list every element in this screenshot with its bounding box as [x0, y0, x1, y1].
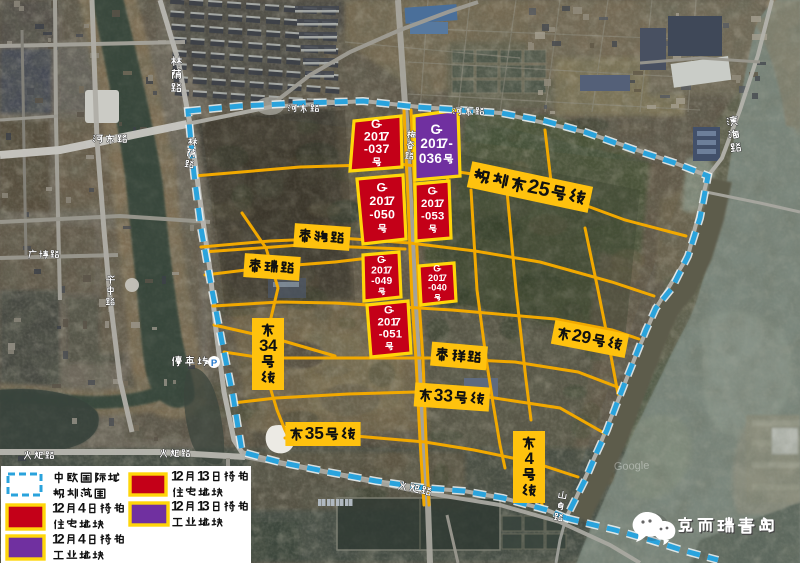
svg-text:3: 3: [375, 142, 382, 156]
svg-text:-: -: [391, 304, 395, 316]
svg-text:0: 0: [383, 328, 389, 340]
svg-text:7: 7: [388, 194, 395, 208]
svg-text:4: 4: [78, 530, 86, 546]
svg-text:2: 2: [369, 194, 376, 208]
svg-text:7: 7: [383, 142, 390, 156]
svg-text:4: 4: [78, 499, 86, 515]
svg-text:5: 5: [389, 328, 395, 340]
svg-text:5: 5: [432, 210, 438, 222]
svg-text:0: 0: [428, 136, 436, 151]
svg-text:0: 0: [377, 194, 384, 208]
svg-text:1: 1: [396, 328, 402, 340]
svg-text:3: 3: [202, 497, 210, 513]
svg-text:2: 2: [57, 499, 65, 515]
svg-text:2: 2: [57, 530, 65, 546]
svg-text:5: 5: [314, 423, 324, 443]
svg-text:0: 0: [419, 151, 427, 166]
svg-text:-: -: [384, 180, 388, 194]
svg-text:-: -: [439, 264, 442, 274]
svg-text:7: 7: [441, 136, 449, 151]
svg-text:Google: Google: [614, 460, 650, 473]
svg-text:-: -: [434, 185, 438, 197]
svg-text:0: 0: [368, 142, 375, 156]
svg-text:3: 3: [443, 385, 454, 406]
svg-text:2: 2: [420, 136, 428, 151]
svg-text:0: 0: [425, 210, 431, 222]
svg-text:-: -: [438, 122, 443, 137]
svg-text:-: -: [448, 136, 453, 151]
svg-text:0: 0: [428, 198, 434, 210]
svg-text:3: 3: [438, 210, 444, 222]
svg-text:7: 7: [438, 198, 444, 210]
svg-text:0: 0: [442, 283, 447, 293]
svg-text:2: 2: [378, 316, 384, 328]
svg-text:7: 7: [387, 265, 393, 276]
svg-text:0: 0: [384, 316, 390, 328]
svg-text:34: 34: [259, 336, 278, 355]
svg-text:0: 0: [374, 207, 381, 221]
svg-text:3: 3: [427, 151, 435, 166]
svg-text:2: 2: [421, 198, 427, 210]
svg-text:0: 0: [388, 207, 395, 221]
svg-text:7: 7: [442, 273, 447, 283]
svg-text:2: 2: [176, 467, 184, 483]
svg-text:-: -: [383, 255, 387, 266]
svg-text:5: 5: [381, 207, 388, 221]
svg-text:3: 3: [305, 423, 315, 443]
svg-text:4: 4: [525, 449, 535, 468]
svg-text:2: 2: [176, 497, 184, 513]
svg-text:6: 6: [434, 151, 442, 166]
svg-text:3: 3: [202, 467, 210, 483]
svg-text:P: P: [211, 358, 218, 369]
svg-text:7: 7: [395, 316, 401, 328]
svg-text:9: 9: [387, 276, 393, 287]
